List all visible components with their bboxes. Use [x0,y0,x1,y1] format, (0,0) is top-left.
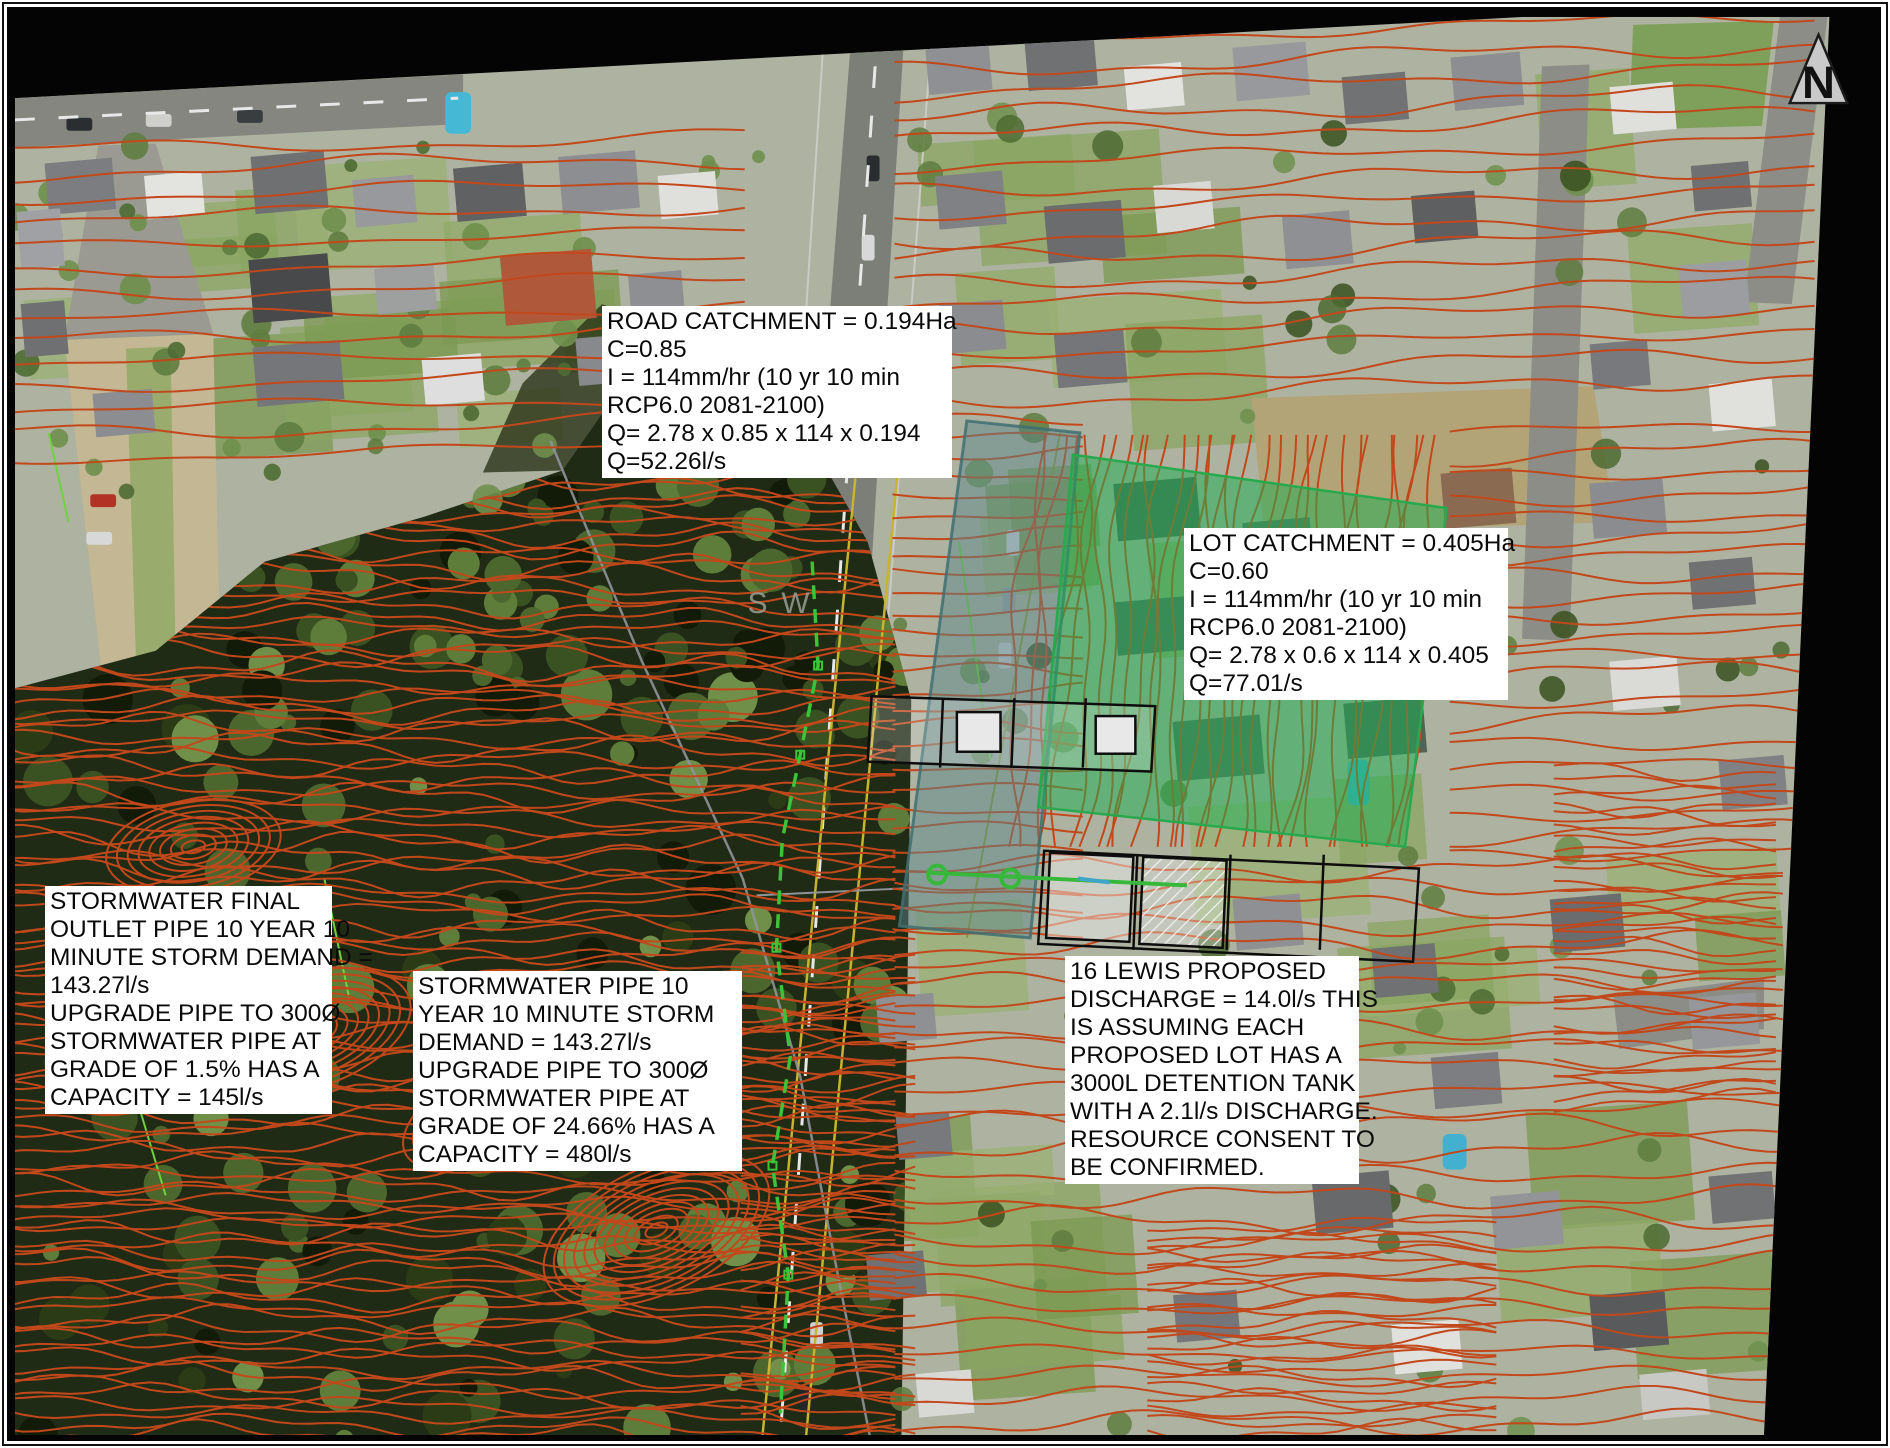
annotation-road-catchment: ROAD CATCHMENT = 0.194Ha C=0.85 I = 114m… [602,306,952,478]
annotation-lewis-discharge: 16 LEWIS PROPOSED DISCHARGE = 14.0l/s TH… [1065,956,1359,1184]
stormwater-catchment-plan: SWN ROAD CATCHMENT = 0.194Ha C=0.85 I = … [0,0,1890,1448]
annotation-stormwater-pipe: STORMWATER PIPE 10 YEAR 10 MINUTE STORM … [413,971,742,1171]
annotation-stormwater-outlet: STORMWATER FINAL OUTLET PIPE 10 YEAR 10 … [45,886,332,1114]
annotation-lot-catchment: LOT CATCHMENT = 0.405Ha C=0.60 I = 114mm… [1184,528,1508,700]
sheet-border [2,2,1888,1446]
